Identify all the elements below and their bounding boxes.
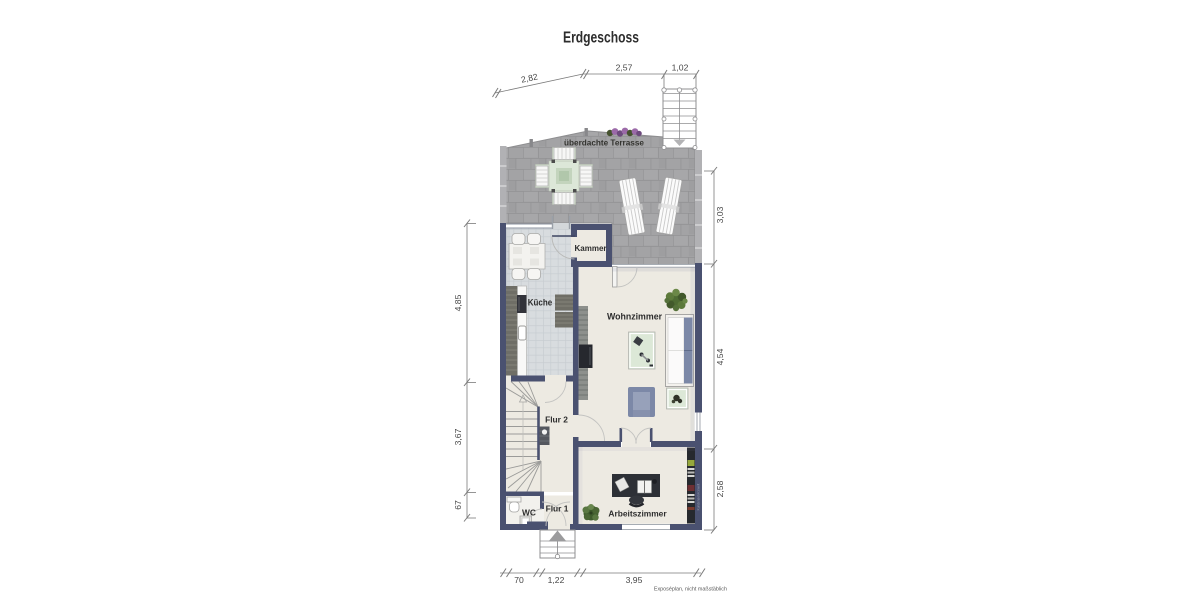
svg-text:2,58: 2,58 (715, 480, 725, 497)
svg-text:1,22: 1,22 (548, 575, 565, 585)
svg-text:4,54: 4,54 (715, 348, 725, 365)
svg-text:3,95: 3,95 (626, 575, 643, 585)
svg-text:Flur 1: Flur 1 (546, 504, 569, 514)
svg-text:Erdgeschoss: Erdgeschoss (563, 30, 639, 47)
svg-text:70: 70 (514, 575, 524, 585)
svg-text:3,67: 3,67 (453, 428, 463, 445)
svg-text:Kundenservicewelt: Kundenservicewelt (697, 484, 701, 511)
svg-text:2,57: 2,57 (616, 63, 633, 73)
svg-text:1,02: 1,02 (672, 63, 689, 73)
svg-text:Küche: Küche (528, 298, 553, 308)
svg-text:Arbeitszimmer: Arbeitszimmer (608, 509, 667, 519)
svg-text:Flur 2: Flur 2 (545, 415, 568, 425)
svg-text:67: 67 (453, 500, 463, 510)
svg-text:4,85: 4,85 (453, 294, 463, 311)
svg-text:Wohnzimmer: Wohnzimmer (607, 312, 663, 322)
svg-text:überdachte Terrasse: überdachte Terrasse (564, 139, 644, 148)
svg-text:3,03: 3,03 (715, 206, 725, 223)
svg-text:Exposéplan, nicht maßstäblich: Exposéplan, nicht maßstäblich (654, 587, 727, 593)
svg-text:Kammer: Kammer (574, 244, 606, 253)
svg-text:WC: WC (522, 508, 536, 518)
